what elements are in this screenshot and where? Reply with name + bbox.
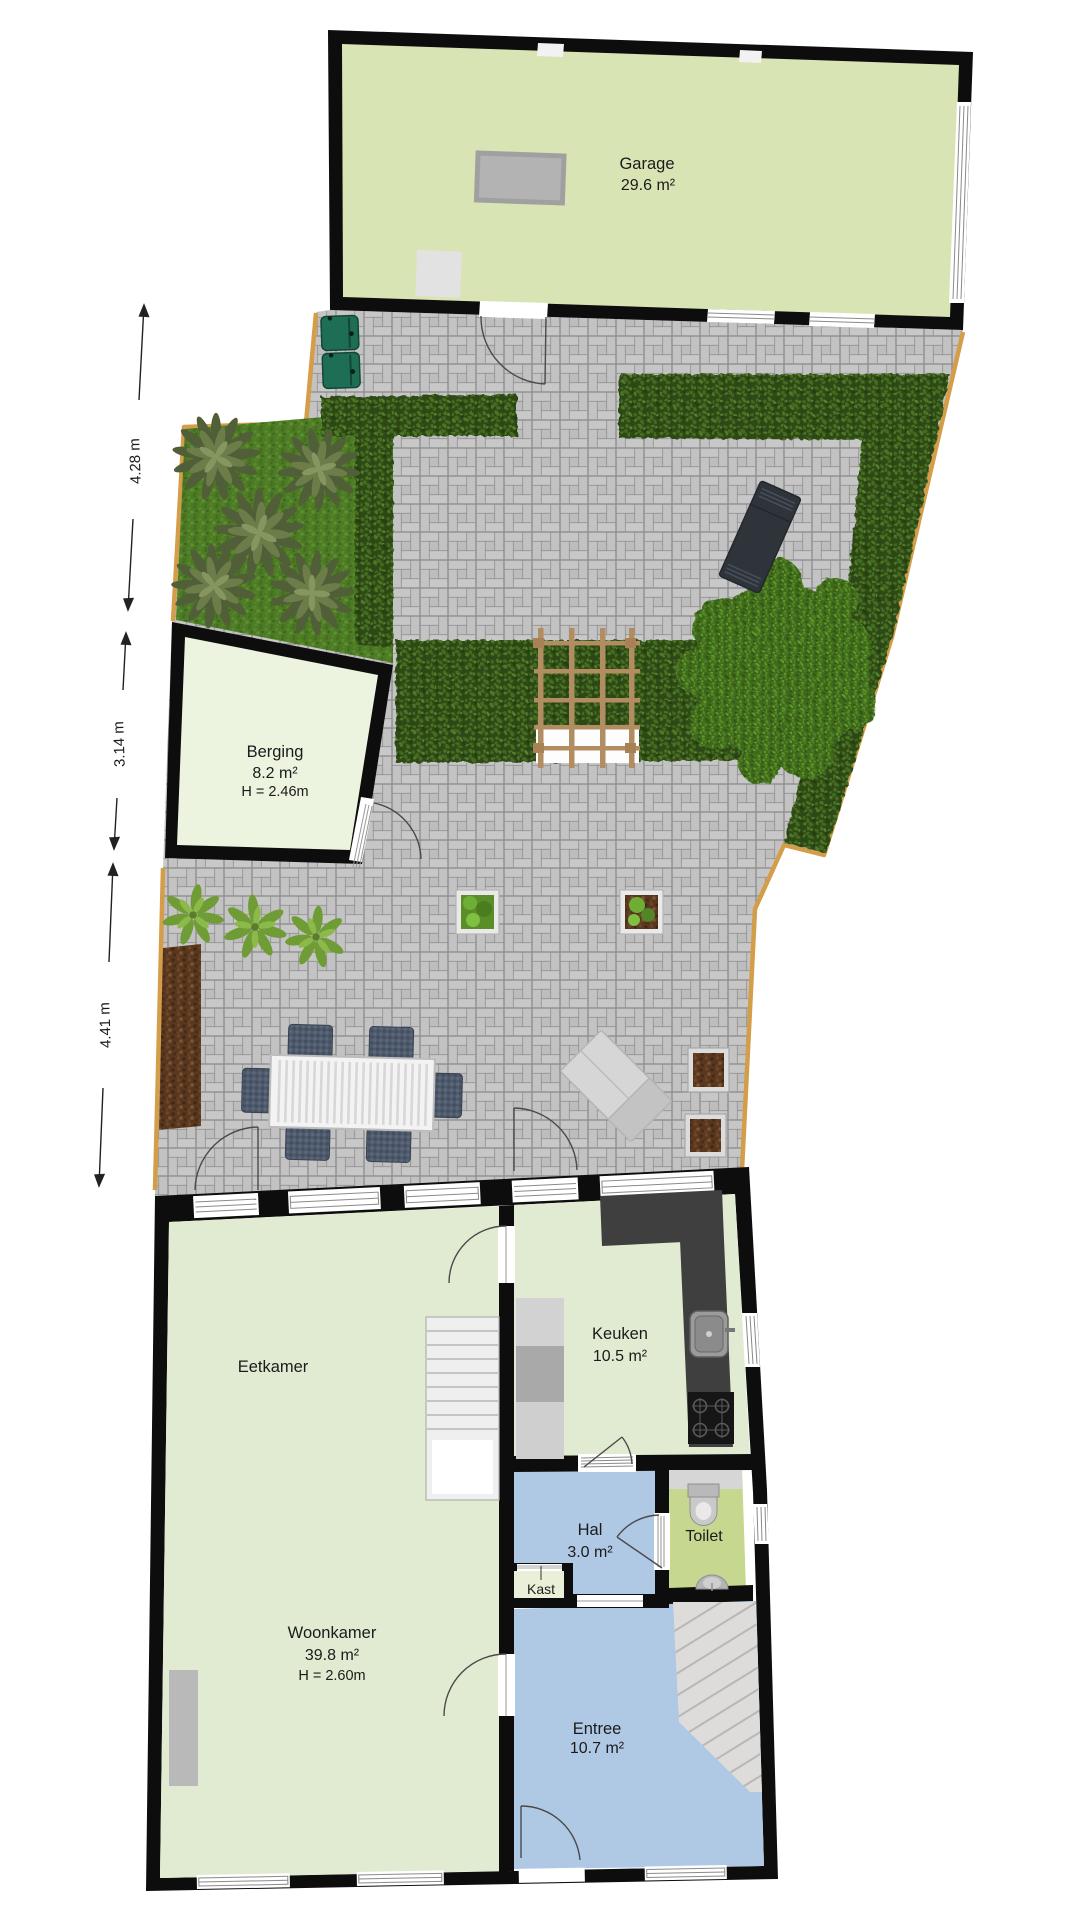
svg-text:Kast: Kast	[527, 1581, 555, 1597]
svg-text:29.6 m²: 29.6 m²	[621, 177, 676, 194]
svg-text:4.41 m: 4.41 m	[96, 1002, 115, 1048]
svg-text:H = 2.46m: H = 2.46m	[241, 784, 308, 800]
svg-text:10.5 m²: 10.5 m²	[593, 1348, 648, 1365]
svg-text:Woonkamer: Woonkamer	[288, 1624, 377, 1642]
svg-text:4.28 m: 4.28 m	[126, 438, 145, 484]
svg-text:Keuken: Keuken	[592, 1325, 648, 1343]
svg-text:Eetkamer: Eetkamer	[238, 1358, 309, 1376]
svg-text:Toilet: Toilet	[685, 1528, 723, 1545]
svg-text:8.2 m²: 8.2 m²	[252, 765, 298, 782]
svg-text:3.14 m: 3.14 m	[110, 721, 129, 767]
svg-text:Berging: Berging	[247, 743, 304, 761]
svg-text:3.0 m²: 3.0 m²	[567, 1544, 613, 1561]
svg-text:Garage: Garage	[619, 155, 674, 173]
svg-text:Entree: Entree	[573, 1720, 622, 1738]
svg-text:10.7 m²: 10.7 m²	[570, 1740, 625, 1757]
svg-text:39.8 m²: 39.8 m²	[305, 1647, 360, 1664]
svg-text:Hal: Hal	[578, 1521, 603, 1539]
svg-text:H = 2.60m: H = 2.60m	[298, 1668, 365, 1684]
